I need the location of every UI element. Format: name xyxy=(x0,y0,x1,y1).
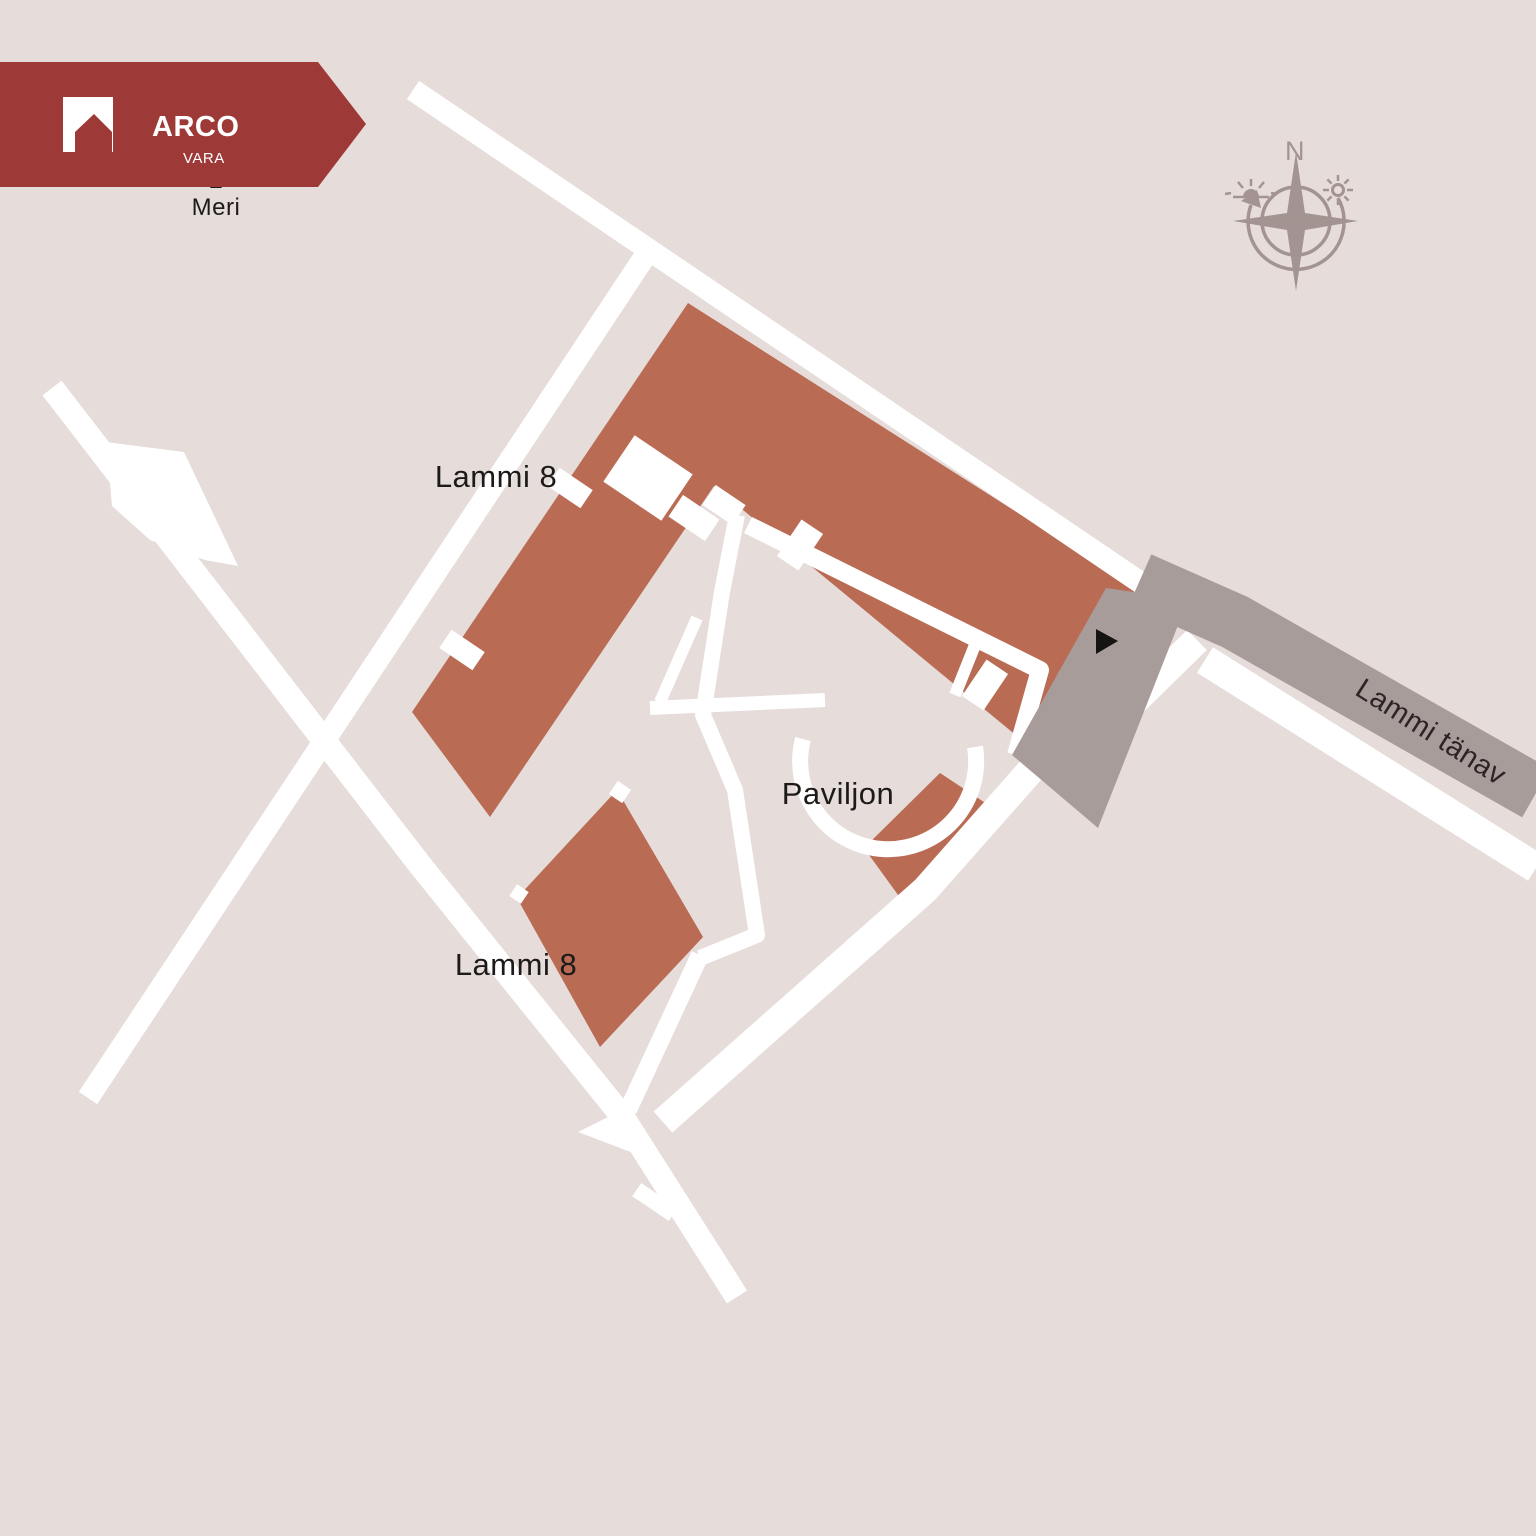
path-courtyard-cross xyxy=(650,700,825,708)
site-plan-map: Lammi tänav Lammi 8 Lammi 8 Paviljon Mer… xyxy=(0,0,1536,1536)
brand-subname: VARA xyxy=(183,150,225,167)
label-paviljon: Paviljon xyxy=(782,776,895,811)
label-lammi8-upper: Lammi 8 xyxy=(435,459,557,494)
site-plan-canvas: Lammi tänav Lammi 8 Lammi 8 Paviljon Mer… xyxy=(0,0,1536,1536)
brand-name: ARCO xyxy=(152,111,239,143)
label-meri: Meri xyxy=(192,194,241,221)
label-lammi8-lower: Lammi 8 xyxy=(455,947,577,982)
map-background xyxy=(0,0,1536,1536)
compass-north-label: N xyxy=(1285,136,1305,166)
brand-banner: ARCO VARA xyxy=(0,62,366,187)
